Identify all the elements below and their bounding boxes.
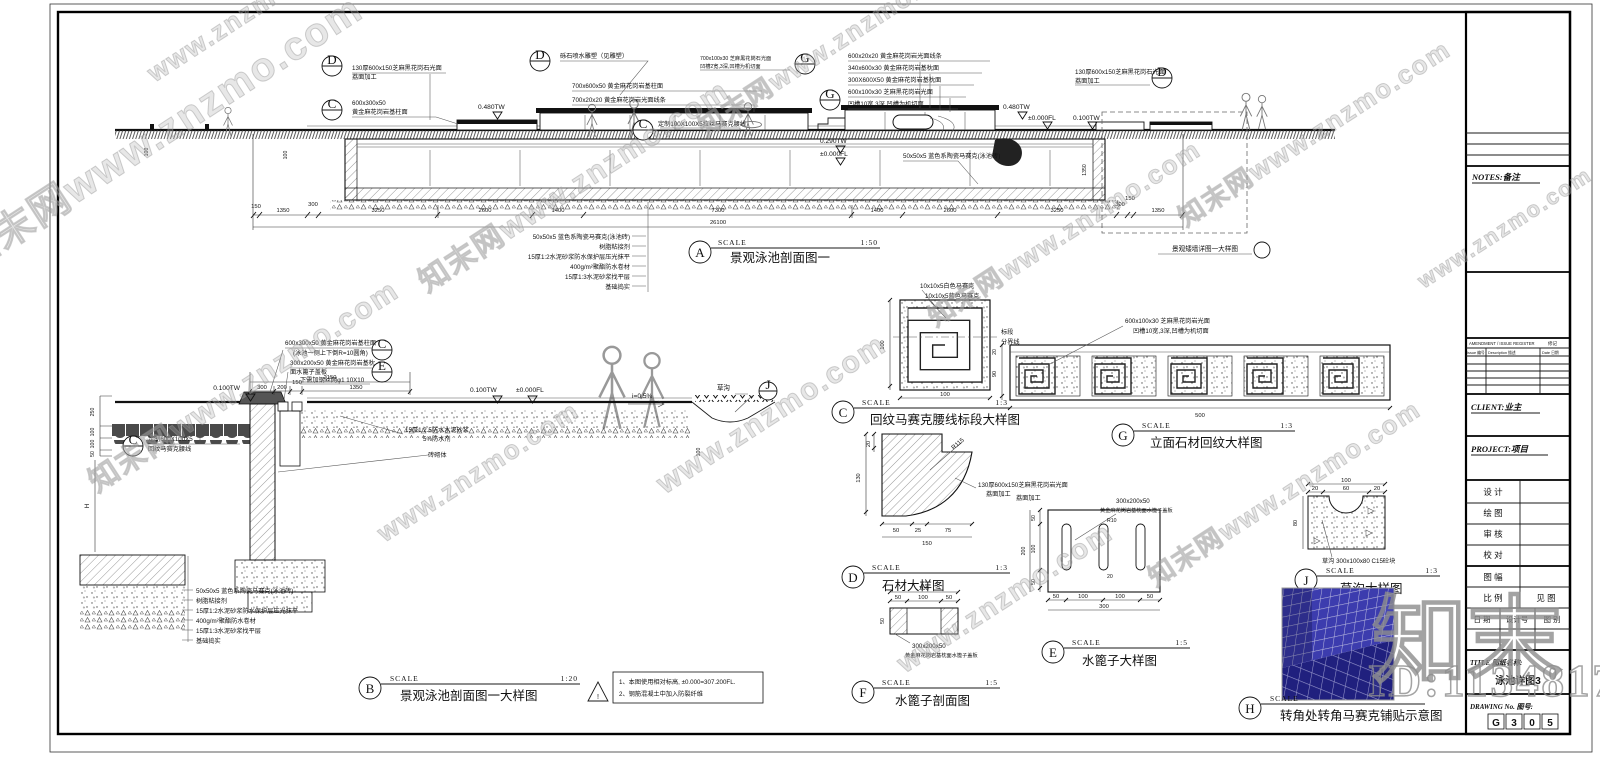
dim: 1400 xyxy=(871,208,884,214)
detail-j: 100 20 60 20 80 草沟 300x100x80 C15砼块 J SC… xyxy=(1293,478,1440,596)
ref-box-label: 景观矮墙详图一大样图 xyxy=(1172,244,1238,253)
annotation: 砾石喷水雕塑（见雕塑） xyxy=(560,52,628,60)
cad-canvas: D C D G C G D 130厚600x150芝麻黑花岗石光面 荔面加工 6… xyxy=(0,0,1600,763)
section-b-dims: 2150 300 200 150 1350 250 100 100 50 H 1… xyxy=(84,372,702,552)
scale-ratio: 1:20 xyxy=(561,674,578,683)
col-description: Description 描述 xyxy=(1488,350,1516,355)
dim: 300 xyxy=(1115,202,1125,208)
title-block: NOTES:备注 AMENDMENT / ISSUE REGISTER 修记 I… xyxy=(1466,12,1570,734)
row-date: 日 期 xyxy=(1473,615,1490,624)
bubble-letter: G xyxy=(800,50,809,65)
dim: 20 xyxy=(1312,486,1318,492)
dim: 2600 xyxy=(944,208,957,214)
dim: 80 xyxy=(1293,520,1299,526)
scale-word: SCALE xyxy=(1072,638,1101,647)
drawing-no-cell: 0 xyxy=(1529,718,1535,729)
layer: 50x50x5 蓝色系陶瓷马赛克(泳池砖) xyxy=(196,587,293,595)
deck-subbase xyxy=(300,410,690,428)
dim: 100 xyxy=(918,595,928,601)
annotation: 草沟 xyxy=(717,383,731,392)
scale-ratio: 1:3 xyxy=(1280,421,1293,430)
layer: 50x50x5 蓝色系陶瓷马赛克(泳池砖) xyxy=(533,233,630,241)
dim: 100 xyxy=(940,392,950,398)
annotation: 130厚600x150芝麻黑花岗石光面 xyxy=(352,64,442,72)
drawing-no-cells: G 3 0 5 xyxy=(1488,714,1558,729)
section-b-title: B SCALE 1:20 景观泳池剖面图一大样图 xyxy=(359,674,580,703)
layer: 400g/m²聚酯防水卷材 xyxy=(196,617,256,625)
scale-word: SCALE xyxy=(872,563,901,572)
dim: 100 xyxy=(144,148,150,157)
dim: 7300 xyxy=(712,208,725,214)
section-letter: C xyxy=(839,405,848,420)
dim: 25 xyxy=(915,528,921,534)
annotation: 标段 xyxy=(1001,328,1013,336)
dim: 1350 xyxy=(350,385,363,391)
section-a: D C D G C G D 130厚600x150芝麻黑花岗石光面 荔面加工 6… xyxy=(115,47,1335,292)
level-label: ±0.000FL xyxy=(820,151,848,158)
row-design-no: 设计号 xyxy=(1506,614,1529,624)
annotation: 130厚600x150芝麻黑花岗岩光面 xyxy=(978,481,1068,489)
amendment-header: AMENDMENT / ISSUE REGISTER xyxy=(1469,341,1535,346)
row-scale: 比 例 xyxy=(1483,593,1502,603)
bubble-letter: J xyxy=(765,377,770,392)
title-label: TITLE 图纸名称: xyxy=(1470,658,1522,667)
dim: 300 xyxy=(308,202,318,208)
section-letter: E xyxy=(1049,645,1057,660)
amendment-header-cn: 修记 xyxy=(1548,340,1557,347)
dim: H xyxy=(84,504,91,508)
note-line: 1、本图使用相对标高, ±0.000=307.200FL. xyxy=(619,678,736,686)
note-box: ! 1、本图使用相对标高, ±0.000=307.200FL. 2、钢筋混凝土中… xyxy=(588,672,763,703)
drawing-no-label: DRAWING No. 图号: xyxy=(1469,703,1533,711)
level-label: 0.480TW xyxy=(478,104,506,111)
annotation: 凹槽10宽,3深,凹槽为机切面 xyxy=(848,100,924,108)
mosaic-photo xyxy=(1282,588,1394,700)
detail-e: 荔面加工 300x200x50 黄金麻花岗岩基枕面水篦子盖板 50 100 50… xyxy=(1016,494,1190,668)
dim: 500 xyxy=(1195,413,1205,419)
bubble-letter: D xyxy=(327,52,336,67)
callout-bubbles: D C D G C G D xyxy=(322,47,1270,258)
scale-ratio: 1:50 xyxy=(861,238,878,247)
dim: 200 xyxy=(1021,547,1027,556)
drawing-no-cell: 5 xyxy=(1547,718,1553,729)
scale-word: SCALE xyxy=(718,238,747,247)
section-name: 水篦子剖面图 xyxy=(895,693,970,708)
annotation: 凹槽10宽,3深,凹槽为机切面 xyxy=(1133,327,1209,335)
annotation: 荔面加工 xyxy=(986,490,1011,498)
dim: 90 xyxy=(992,371,998,377)
section-b: 2150 300 200 150 1350 250 100 100 50 H 1… xyxy=(80,336,777,703)
dim: 50 xyxy=(1053,594,1059,600)
radius-label: R115 xyxy=(950,436,966,451)
annotation: 600x100x30 芝麻黑花岗岩光面 xyxy=(1125,317,1210,325)
client-label: CLIENT:业主 xyxy=(1471,402,1523,412)
dim: 1400 xyxy=(552,208,565,214)
layer: 基础捣实 xyxy=(196,637,221,645)
slope-label: i=0.5% xyxy=(632,393,652,400)
section-a-vdims: 100 100 1350 xyxy=(144,148,1088,176)
detail-g: 600x100x30 芝麻黑花岗岩光面 凹槽10宽,3深,凹槽为机切面 90 2… xyxy=(992,317,1392,450)
dim: 3250 xyxy=(372,208,385,214)
section-letter: D xyxy=(848,570,857,585)
section-a-title: A SCALE 1:50 景观泳池剖面图一 xyxy=(689,238,880,265)
dim: 100 xyxy=(1115,594,1125,600)
annotation: 700x100x30 芝麻黑花岗石光面 xyxy=(700,54,771,62)
dim-total: 26100 xyxy=(710,220,726,226)
section-letter: J xyxy=(1303,573,1308,588)
layer: 基础捣实 xyxy=(605,283,630,291)
bubble-letter: G xyxy=(825,86,834,101)
detail-f: 200 50 100 50 50 300x200x50 黄金麻花岗岩基枕面水篦子… xyxy=(852,586,1000,708)
project-label: PROJECT:项目 xyxy=(1471,444,1528,454)
section-letter: B xyxy=(366,681,375,696)
layer: 树脂粘接剂 xyxy=(599,243,630,251)
dim: 20 xyxy=(1107,574,1113,580)
layer: 15厚1:2水泥砂浆防水保护层压光抹平 xyxy=(528,253,630,261)
dim: 100 xyxy=(880,340,886,349)
layer: 15厚1:3水泥砂浆找平层 xyxy=(565,273,630,281)
dim: 50 xyxy=(893,528,899,534)
level-label: 0.480TW xyxy=(1003,104,1031,111)
annotation: 130厚600x150芝麻黑花岗石光面 xyxy=(1075,68,1165,76)
section-a-dims: 150 1350 300 3250 2600 1400 7300 1400 26… xyxy=(251,134,1185,230)
level-label: 0.100TW xyxy=(470,387,498,394)
dim: 100 xyxy=(90,428,96,437)
scale-value: 见 图 xyxy=(1536,593,1555,603)
level-label: ±0.000FL xyxy=(1028,115,1056,122)
layer: 树脂粘接剂 xyxy=(196,597,227,605)
dim: 20 xyxy=(1374,486,1380,492)
level-label: 0.100TW xyxy=(213,385,241,392)
pool-wall xyxy=(250,404,275,560)
dim: 300 xyxy=(257,385,267,391)
section-name: 立面石材回纹大样图 xyxy=(1150,435,1263,450)
annotation: 5%防水剂 xyxy=(423,435,451,443)
dim: 20 xyxy=(992,349,998,355)
note-line: 2、钢筋混凝土中加入防裂纤维 xyxy=(619,690,703,698)
annotation: 340x600x30 黄金麻花岗岩基枕面 xyxy=(848,64,939,72)
dim: 1350 xyxy=(1152,208,1165,214)
drawing-sheet: D C D G C G D 130厚600x150芝麻黑花岗石光面 荔面加工 6… xyxy=(0,0,1600,763)
dim: 75 xyxy=(945,528,951,534)
row-review: 审 核 xyxy=(1483,529,1503,539)
dim: 100 xyxy=(696,448,702,457)
annotation: 面水篦子盖板 xyxy=(290,368,327,376)
annotation: 定制600X100X5 xyxy=(148,435,193,443)
dim: 130 xyxy=(856,473,862,482)
notes-label: NOTES:备注 xyxy=(1471,172,1521,182)
scale-word: SCALE xyxy=(1270,694,1299,703)
annotation: 600x100x30 芝麻黑花岗岩光面 xyxy=(848,88,933,96)
row-design: 设 计 xyxy=(1483,487,1503,497)
annotation: 黄金麻花岗岩基柱面 xyxy=(352,108,408,116)
row-type: 图 别 xyxy=(1543,615,1560,624)
annotation: 草沟 300x100x80 C15砼块 xyxy=(1322,557,1395,565)
dim: 50 xyxy=(880,618,886,624)
section-name: 转角处转角马赛克铺贴示意图 xyxy=(1280,708,1443,723)
title-value: 泳池详图3 xyxy=(1495,674,1541,687)
annotation: 荔面加工 xyxy=(352,73,377,81)
dim: 60 xyxy=(1343,486,1349,492)
section-letter: A xyxy=(695,245,705,260)
fret-cells xyxy=(1016,356,1384,396)
detail-d: R115 20 130 50 25 75 150 130厚600x150芝麻黑花… xyxy=(842,432,1068,593)
dim: 100 xyxy=(1031,545,1037,554)
dim: 3250 xyxy=(1051,208,1064,214)
annotation: (泳池一侧上下倒R=10圆角) xyxy=(293,349,368,357)
detail-h: H SCALE 转角处转角马赛克铺贴示意图 xyxy=(1239,588,1443,723)
row-draw: 绘 图 xyxy=(1483,508,1502,518)
annotation: 10x10x5白色马赛克 xyxy=(920,282,974,290)
deck-hatch xyxy=(115,130,1335,139)
row-size: 图 幅 xyxy=(1483,572,1503,582)
annotation: 50x50x5 蓝色系陶瓷马赛克(泳池砖) xyxy=(903,152,1000,160)
bubble-letter: D xyxy=(535,47,544,62)
annotation: 700x20x20 黄金麻花岗岩光面线条 xyxy=(572,96,666,104)
annotation: 凹槽2宽,3深,凹槽为机切面 xyxy=(700,62,761,70)
layer: 400g/m²聚酯防水卷材 xyxy=(570,263,630,271)
col-date: Date 日期 xyxy=(1542,350,1559,355)
drawing-no-cell: 3 xyxy=(1511,718,1517,729)
dim: 100 xyxy=(1078,594,1088,600)
layer: 15厚1:2水泥砂浆防水保护层压光抹平 xyxy=(196,607,298,615)
annotation: 黄金麻花岗岩基枕面水篦子盖板 xyxy=(905,651,978,659)
warning-glyph: ! xyxy=(597,692,599,701)
annotation: 10x10x5蓝色马赛克 xyxy=(925,292,979,300)
scale-word: SCALE xyxy=(862,398,891,407)
dim: 20 xyxy=(866,441,872,447)
annotation: 定制100X100X5拉丝马赛克腰线 xyxy=(658,120,746,128)
drain-channel xyxy=(280,411,300,466)
dim: 250 xyxy=(90,408,96,417)
annotation: 300X600X50 黄金麻花岗岩基枕面 xyxy=(848,76,941,84)
dim: 2600 xyxy=(479,208,492,214)
layer: 15厚1:3水泥砂浆找平层 xyxy=(196,627,261,635)
section-name: 景观泳池剖面图一大样图 xyxy=(400,688,538,703)
annotation: 黄金麻花岗岩基枕面水篦子盖板 xyxy=(1100,506,1173,514)
annotation: 荔面加工 xyxy=(1016,494,1041,502)
dim: 150 xyxy=(251,204,261,210)
dim: 50 xyxy=(946,595,952,601)
row-proof: 校 对 xyxy=(1483,550,1503,560)
dim: 50 xyxy=(1031,579,1037,585)
dim: 200 xyxy=(919,586,929,592)
bubble-letter: E xyxy=(378,358,386,373)
annotation: 300x200x50 黄金麻花岗岩基枕 xyxy=(290,359,375,367)
section-letter: H xyxy=(1245,701,1254,716)
dim: 100 xyxy=(90,440,96,449)
section-name: 水篦子大样图 xyxy=(1082,653,1157,668)
pool-basin xyxy=(330,138,1120,210)
scale-ratio: 1:5 xyxy=(1175,638,1188,647)
annotation: 荔面加工 xyxy=(1075,77,1100,85)
dim: 50 xyxy=(1031,515,1037,521)
annotation: 300x200x50 xyxy=(912,643,946,650)
annotation: 下需加钢丝网φ1 10X10 xyxy=(300,376,365,384)
dim: R10 xyxy=(1107,518,1117,524)
scale-ratio: 1:3 xyxy=(995,563,1008,572)
annotation: 砖砌体 xyxy=(428,451,447,459)
scale-ratio: 1:5 xyxy=(985,678,998,687)
annotation: 300x200x50 xyxy=(1116,498,1150,505)
annotation: 15厚1:2.5防水水泥砂浆 xyxy=(405,426,469,434)
dim: 1350 xyxy=(1082,164,1088,176)
annotation: 600x300x50 黄金麻花岗岩基柱面 xyxy=(285,339,376,347)
drawing-no-cell: G xyxy=(1492,718,1500,729)
bubble-letter: C xyxy=(328,96,337,111)
scale-word: SCALE xyxy=(882,678,911,687)
scale-word: SCALE xyxy=(1142,421,1171,430)
bubble-letter: C xyxy=(129,432,138,447)
section-name: 回纹马赛克腰线标段大样图 xyxy=(870,412,1020,427)
dim: 150 xyxy=(1125,196,1135,202)
dim: 300 xyxy=(1099,604,1109,610)
level-label: ±0.000FL xyxy=(516,387,544,394)
annotation: 回纹马赛克腰线 xyxy=(148,445,191,453)
bubble-letter: C xyxy=(639,116,648,131)
dim: 50 xyxy=(1147,594,1153,600)
dim: 50 xyxy=(895,595,901,601)
dim: 100 xyxy=(1341,478,1351,484)
dim: 100 xyxy=(283,151,289,160)
annotation: 700x600x50 黄金麻花岗岩基柱面 xyxy=(572,82,663,90)
dim: 50 xyxy=(90,451,96,457)
layer-list-a: 50x50x5 蓝色系陶瓷马赛克(泳池砖) 树脂粘接剂 15厚1:2水泥砂浆防水… xyxy=(528,202,648,292)
dim: 150 xyxy=(922,541,932,547)
level-label: 0.100TW xyxy=(1073,115,1101,122)
annotation: 600x20x20 黄金麻花岗岩光面线条 xyxy=(848,52,942,60)
section-letter: G xyxy=(1118,428,1127,443)
annotation: 600x300x50 xyxy=(352,100,386,107)
section-name: 景观泳池剖面图一 xyxy=(730,251,830,265)
bubble-letter: C xyxy=(378,336,387,351)
scale-word: SCALE xyxy=(390,674,419,683)
scale-ratio: 1:3 xyxy=(1425,566,1438,575)
dim: 1350 xyxy=(277,208,290,214)
col-issue: Issue 编号 xyxy=(1467,350,1485,355)
scale-word: SCALE xyxy=(1326,566,1355,575)
level-label: 0.290TW xyxy=(820,138,848,145)
section-letter: F xyxy=(859,685,866,700)
